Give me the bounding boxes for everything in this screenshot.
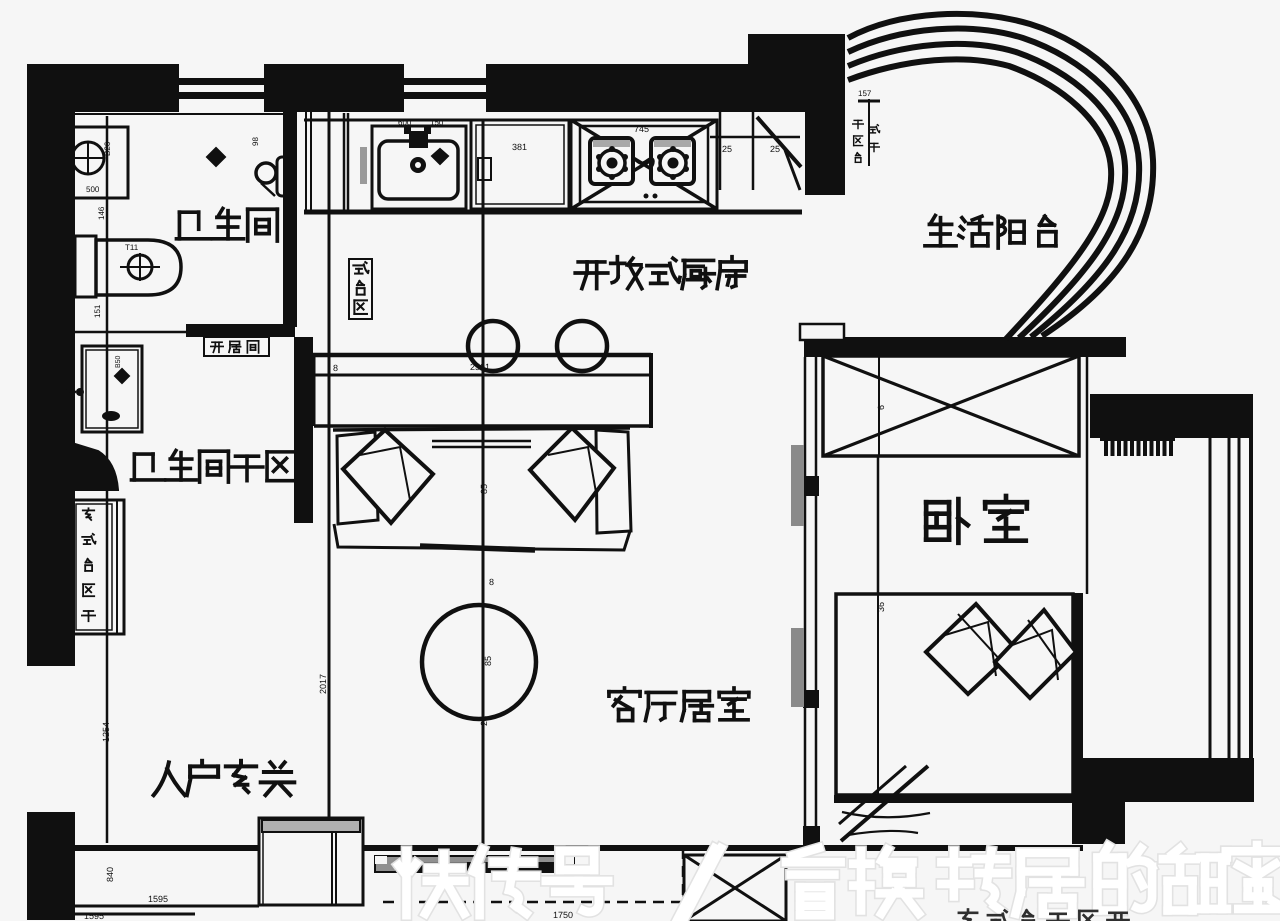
- svg-text:25: 25: [722, 144, 732, 154]
- svg-text:745: 745: [634, 124, 649, 134]
- svg-text:98: 98: [251, 137, 260, 146]
- svg-text:B50: B50: [115, 355, 122, 368]
- svg-text:381: 381: [512, 142, 527, 152]
- svg-text:157: 157: [858, 89, 872, 98]
- svg-text:1595: 1595: [148, 894, 168, 904]
- svg-text:6: 6: [876, 405, 886, 410]
- svg-text:8: 8: [489, 577, 494, 587]
- svg-text:150: 150: [430, 118, 444, 127]
- svg-text:36: 36: [876, 602, 886, 612]
- svg-text:T11: T11: [125, 243, 139, 252]
- svg-text:1750: 1750: [553, 910, 573, 920]
- svg-text:B26: B26: [103, 141, 112, 156]
- svg-text:146: 146: [97, 206, 106, 220]
- svg-text:2501: 2501: [470, 362, 490, 372]
- svg-text:2017: 2017: [318, 674, 328, 694]
- svg-text:1254: 1254: [101, 722, 111, 742]
- svg-text:25: 25: [770, 144, 780, 154]
- svg-text:600: 600: [398, 118, 412, 127]
- svg-text:840: 840: [105, 867, 115, 882]
- svg-text:1595: 1595: [84, 911, 104, 921]
- svg-text:85: 85: [483, 656, 493, 666]
- svg-text:500: 500: [86, 185, 100, 194]
- svg-text:8: 8: [333, 363, 338, 373]
- svg-text:24: 24: [479, 716, 489, 726]
- svg-text:151: 151: [93, 304, 102, 318]
- svg-text:85: 85: [479, 484, 489, 494]
